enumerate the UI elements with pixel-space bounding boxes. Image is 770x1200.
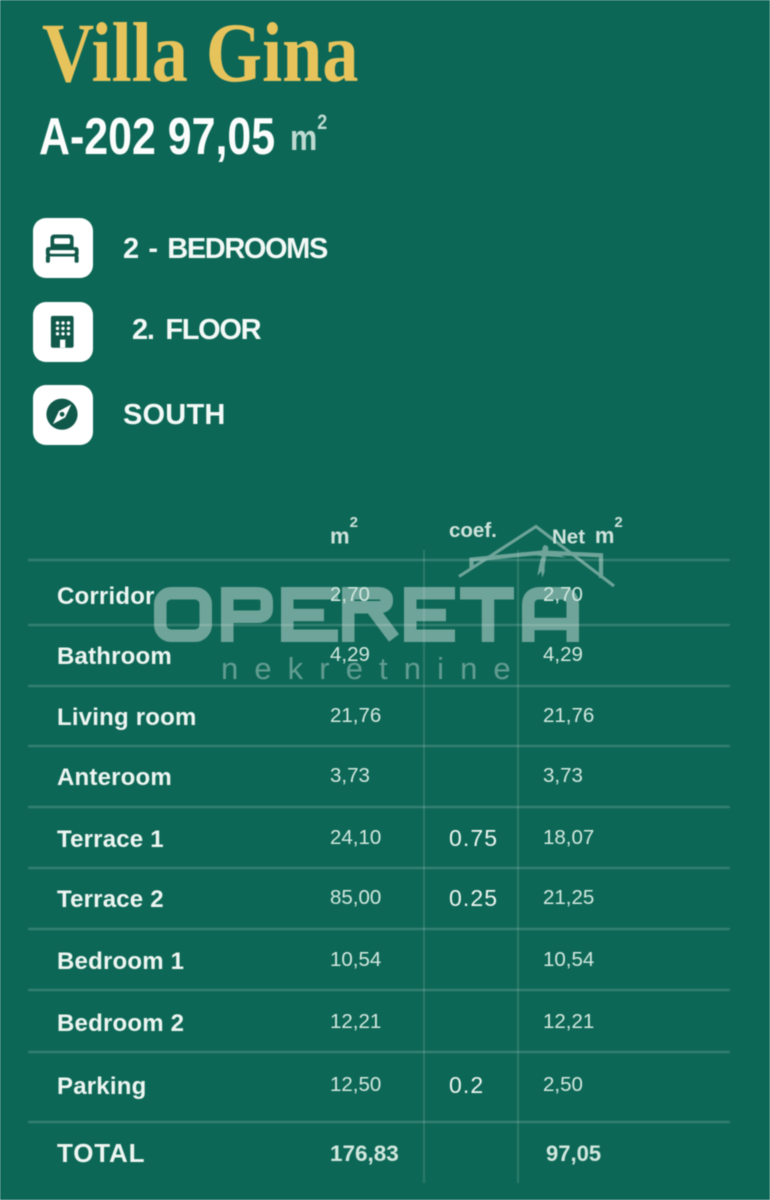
svg-text:nekretnine: nekretnine [221, 651, 527, 686]
